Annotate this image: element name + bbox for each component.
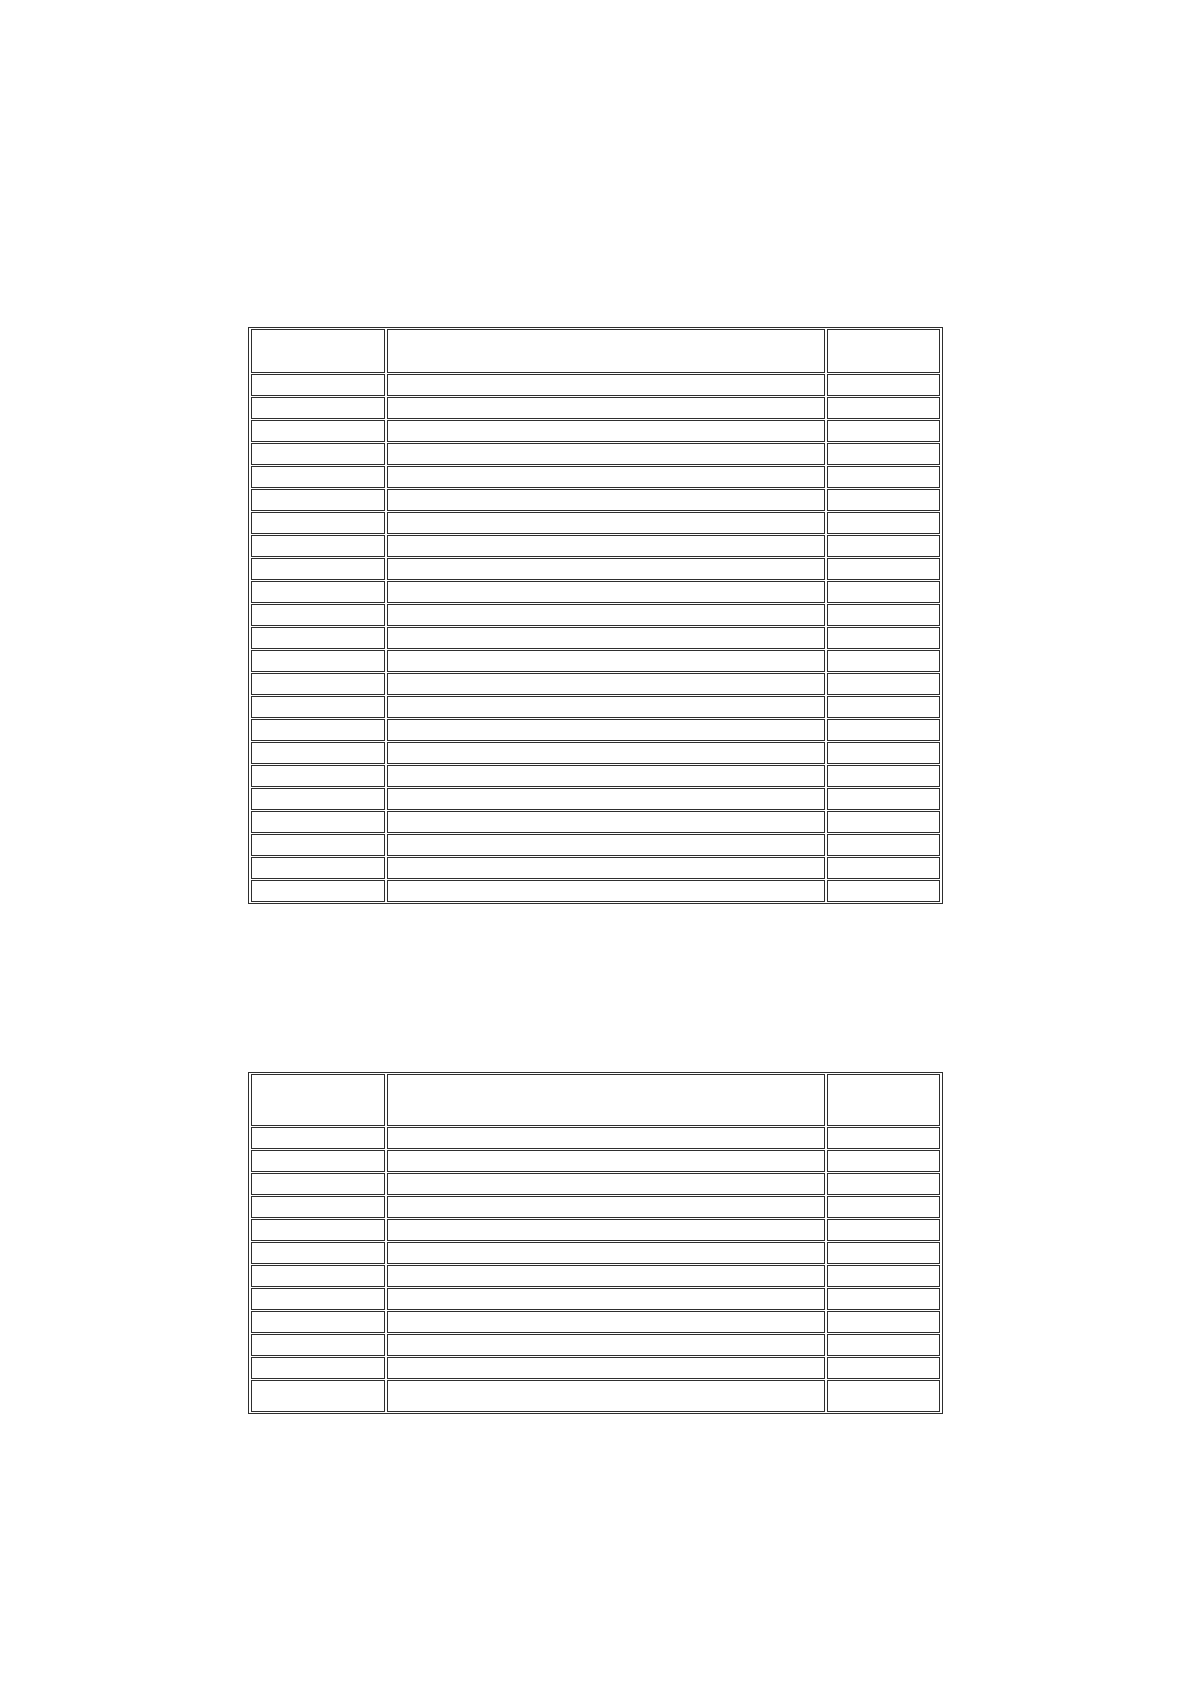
table-row xyxy=(251,1357,940,1379)
body-cell xyxy=(827,1219,940,1241)
body-cell xyxy=(827,811,940,833)
body-cell xyxy=(827,581,940,603)
body-cell xyxy=(387,788,825,810)
body-cell xyxy=(251,696,385,718)
body-cell xyxy=(387,1150,825,1172)
table-row xyxy=(251,443,940,465)
body-cell xyxy=(251,650,385,672)
table-row xyxy=(251,1150,940,1172)
body-cell xyxy=(827,466,940,488)
table-row xyxy=(251,558,940,580)
body-cell xyxy=(387,719,825,741)
table-row xyxy=(251,604,940,626)
body-cell xyxy=(827,627,940,649)
body-cell xyxy=(251,742,385,764)
body-cell xyxy=(387,1311,825,1333)
body-cell xyxy=(827,604,940,626)
body-cell xyxy=(251,1357,385,1379)
body-cell xyxy=(251,581,385,603)
body-cell xyxy=(387,1265,825,1287)
table-row xyxy=(251,1196,940,1218)
body-cell xyxy=(251,604,385,626)
body-cell xyxy=(387,397,825,419)
body-cell xyxy=(827,1334,940,1356)
table-row xyxy=(251,650,940,672)
body-cell xyxy=(251,765,385,787)
body-cell xyxy=(251,811,385,833)
body-cell xyxy=(251,834,385,856)
body-cell xyxy=(827,673,940,695)
body-cell xyxy=(827,1150,940,1172)
body-cell xyxy=(387,811,825,833)
body-cell xyxy=(827,443,940,465)
body-cell xyxy=(251,1173,385,1195)
body-cell xyxy=(251,1196,385,1218)
body-cell xyxy=(827,535,940,557)
body-cell xyxy=(387,466,825,488)
body-cell xyxy=(827,857,940,879)
table-row xyxy=(251,742,940,764)
body-cell xyxy=(251,535,385,557)
header-row xyxy=(251,329,940,373)
body-cell xyxy=(251,1127,385,1149)
table-row xyxy=(251,420,940,442)
body-cell xyxy=(387,1357,825,1379)
body-cell xyxy=(251,1265,385,1287)
body-cell xyxy=(387,604,825,626)
body-cell xyxy=(387,834,825,856)
body-cell xyxy=(387,581,825,603)
table-row xyxy=(251,535,940,557)
body-cell xyxy=(387,374,825,396)
body-cell xyxy=(251,788,385,810)
body-cell xyxy=(251,857,385,879)
body-cell xyxy=(827,1196,940,1218)
body-cell xyxy=(251,374,385,396)
header-row xyxy=(251,1074,940,1126)
table-row xyxy=(251,696,940,718)
table-row xyxy=(251,397,940,419)
body-cell xyxy=(251,627,385,649)
body-cell xyxy=(251,1219,385,1241)
body-cell xyxy=(827,834,940,856)
body-cell xyxy=(387,1127,825,1149)
body-cell xyxy=(827,558,940,580)
table-row xyxy=(251,489,940,511)
body-cell xyxy=(827,650,940,672)
table-row xyxy=(251,1219,940,1241)
table-row xyxy=(251,581,940,603)
body-cell xyxy=(251,1380,385,1412)
body-cell xyxy=(827,1127,940,1149)
body-cell xyxy=(387,558,825,580)
body-cell xyxy=(251,719,385,741)
header-cell xyxy=(387,329,825,373)
table-row xyxy=(251,857,940,879)
body-cell xyxy=(827,1357,940,1379)
body-cell xyxy=(251,512,385,534)
body-cell xyxy=(251,420,385,442)
body-cell xyxy=(827,374,940,396)
body-cell xyxy=(251,397,385,419)
table-row xyxy=(251,1242,940,1264)
body-cell xyxy=(251,1334,385,1356)
body-cell xyxy=(827,397,940,419)
body-cell xyxy=(387,650,825,672)
table-row xyxy=(251,1311,940,1333)
body-cell xyxy=(251,880,385,902)
body-cell xyxy=(387,420,825,442)
table-row xyxy=(251,512,940,534)
table-row xyxy=(251,765,940,787)
body-cell xyxy=(387,512,825,534)
table-row xyxy=(251,1380,940,1412)
body-cell xyxy=(827,512,940,534)
table-row xyxy=(251,811,940,833)
body-cell xyxy=(251,1288,385,1310)
body-cell xyxy=(387,1173,825,1195)
body-cell xyxy=(387,489,825,511)
table-row xyxy=(251,1288,940,1310)
table-row xyxy=(251,719,940,741)
table-row xyxy=(251,673,940,695)
body-cell xyxy=(387,765,825,787)
body-cell xyxy=(387,1219,825,1241)
body-cell xyxy=(387,1288,825,1310)
body-cell xyxy=(827,719,940,741)
body-cell xyxy=(827,880,940,902)
body-cell xyxy=(387,627,825,649)
header-cell xyxy=(827,329,940,373)
body-cell xyxy=(827,742,940,764)
table-row xyxy=(251,1173,940,1195)
body-cell xyxy=(827,1265,940,1287)
body-cell xyxy=(827,1173,940,1195)
body-cell xyxy=(387,535,825,557)
body-cell xyxy=(387,1334,825,1356)
body-cell xyxy=(251,1150,385,1172)
table-row xyxy=(251,788,940,810)
body-cell xyxy=(387,673,825,695)
body-cell xyxy=(827,1311,940,1333)
table-row xyxy=(251,466,940,488)
body-cell xyxy=(387,742,825,764)
header-cell xyxy=(827,1074,940,1126)
body-cell xyxy=(251,1311,385,1333)
upper-table xyxy=(248,327,943,904)
body-cell xyxy=(387,1196,825,1218)
body-cell xyxy=(251,443,385,465)
body-cell xyxy=(387,443,825,465)
body-cell xyxy=(251,1242,385,1264)
body-cell xyxy=(387,696,825,718)
header-cell xyxy=(387,1074,825,1126)
body-cell xyxy=(827,696,940,718)
lower-table xyxy=(248,1072,943,1414)
body-cell xyxy=(827,1288,940,1310)
table-row xyxy=(251,1265,940,1287)
body-cell xyxy=(827,765,940,787)
body-cell xyxy=(387,1242,825,1264)
body-cell xyxy=(251,558,385,580)
table-row xyxy=(251,1127,940,1149)
body-cell xyxy=(387,880,825,902)
table-row xyxy=(251,627,940,649)
table-row xyxy=(251,834,940,856)
body-cell xyxy=(251,489,385,511)
body-cell xyxy=(827,1242,940,1264)
body-cell xyxy=(827,788,940,810)
table-row xyxy=(251,1334,940,1356)
table-row xyxy=(251,880,940,902)
header-cell xyxy=(251,1074,385,1126)
document-page xyxy=(0,0,1196,1692)
body-cell xyxy=(387,857,825,879)
header-cell xyxy=(251,329,385,373)
body-cell xyxy=(251,673,385,695)
table-row xyxy=(251,374,940,396)
body-cell xyxy=(387,1380,825,1412)
body-cell xyxy=(827,1380,940,1412)
body-cell xyxy=(251,466,385,488)
body-cell xyxy=(827,489,940,511)
body-cell xyxy=(827,420,940,442)
